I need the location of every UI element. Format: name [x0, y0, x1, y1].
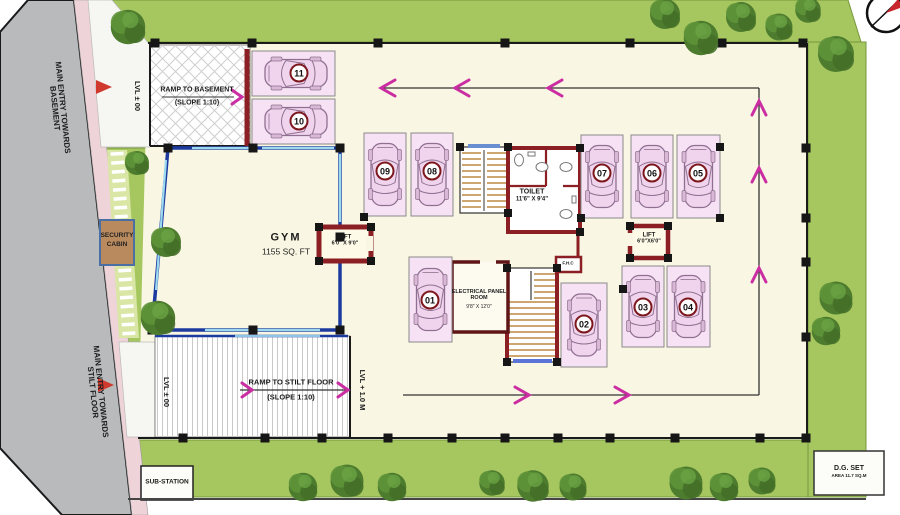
label-electrical-line2: ROOM	[452, 296, 507, 302]
label-toilet-name: TOILET	[516, 189, 548, 196]
label-substation: SUB-STATION	[145, 480, 188, 487]
label-dg-set: D.G. SET AREA 11.7 SQ.M	[831, 465, 866, 479]
label-lift-main-size: 6'0" X 9'0"	[332, 242, 359, 248]
stall-number-07: 07	[593, 164, 612, 183]
label-ramp-stilt-line2: (SLOPE 1:10)	[249, 394, 334, 402]
stall-number-10: 10	[290, 112, 309, 131]
label-lvl-zero-top: LVL ± 00	[133, 81, 141, 111]
stall-number-11: 11	[290, 64, 309, 83]
label-gym: GYM 1155 SQ. FT	[262, 232, 310, 255]
label-security-line1: SECURITY	[101, 233, 134, 240]
label-toilet-size: 11'6" X 9'4"	[516, 197, 548, 203]
stall-number-06: 06	[643, 164, 662, 183]
label-lvl-one: LVL + 1.0 M	[358, 370, 366, 411]
site-plan-graphics	[0, 0, 900, 515]
stall-number-04: 04	[679, 298, 698, 317]
label-security-cabin: SECURITY CABIN	[101, 233, 134, 249]
label-ramp-basement-line2: (SLOPE 1:10)	[160, 100, 233, 107]
label-electrical-size: 9'8" X 12'0"	[452, 305, 507, 310]
stall-number-01: 01	[421, 291, 440, 310]
label-gym-area: 1155 SQ. FT	[262, 247, 310, 256]
compass-icon	[867, 0, 900, 32]
label-gym-name: GYM	[262, 232, 310, 244]
label-toilet: TOILET 11'6" X 9'4"	[516, 189, 548, 204]
label-dg-set-line2: AREA 11.7 SQ.M	[831, 474, 866, 479]
label-lvl-zero-bottom: LVL ± 00	[162, 377, 170, 407]
label-lift-service-size: 6'0"X6'0"	[637, 240, 661, 246]
label-ramp-stilt: RAMP TO STILT FLOOR (SLOPE 1:10)	[249, 379, 334, 402]
stall-number-09: 09	[376, 162, 395, 181]
label-fhc: F.H.C	[562, 262, 573, 267]
label-lift-service: LIFT 6'0"X6'0"	[637, 232, 661, 245]
label-ramp-basement: RAMP TO BASEMENT (SLOPE 1:10)	[160, 87, 233, 108]
label-ramp-stilt-line1: RAMP TO STILT FLOOR	[249, 379, 334, 387]
label-lift-main: LIFT 6'0" X 9'0"	[332, 234, 359, 247]
label-dg-set-line1: D.G. SET	[831, 465, 866, 472]
stair-lower	[507, 268, 557, 362]
stilt-floor-plan: MAIN ENTRY TOWARDS BASEMENT MAIN ENTRY T…	[0, 0, 900, 515]
stall-number-05: 05	[689, 164, 708, 183]
stall-number-03: 03	[634, 298, 653, 317]
stall-number-02: 02	[575, 315, 594, 334]
label-ramp-basement-line1: RAMP TO BASEMENT	[160, 87, 233, 94]
stair-upper	[460, 146, 508, 213]
label-security-line2: CABIN	[101, 242, 134, 249]
stall-number-08: 08	[423, 162, 442, 181]
label-electrical: ELECTRICAL PANEL ROOM 9'8" X 12'0"	[452, 290, 507, 310]
